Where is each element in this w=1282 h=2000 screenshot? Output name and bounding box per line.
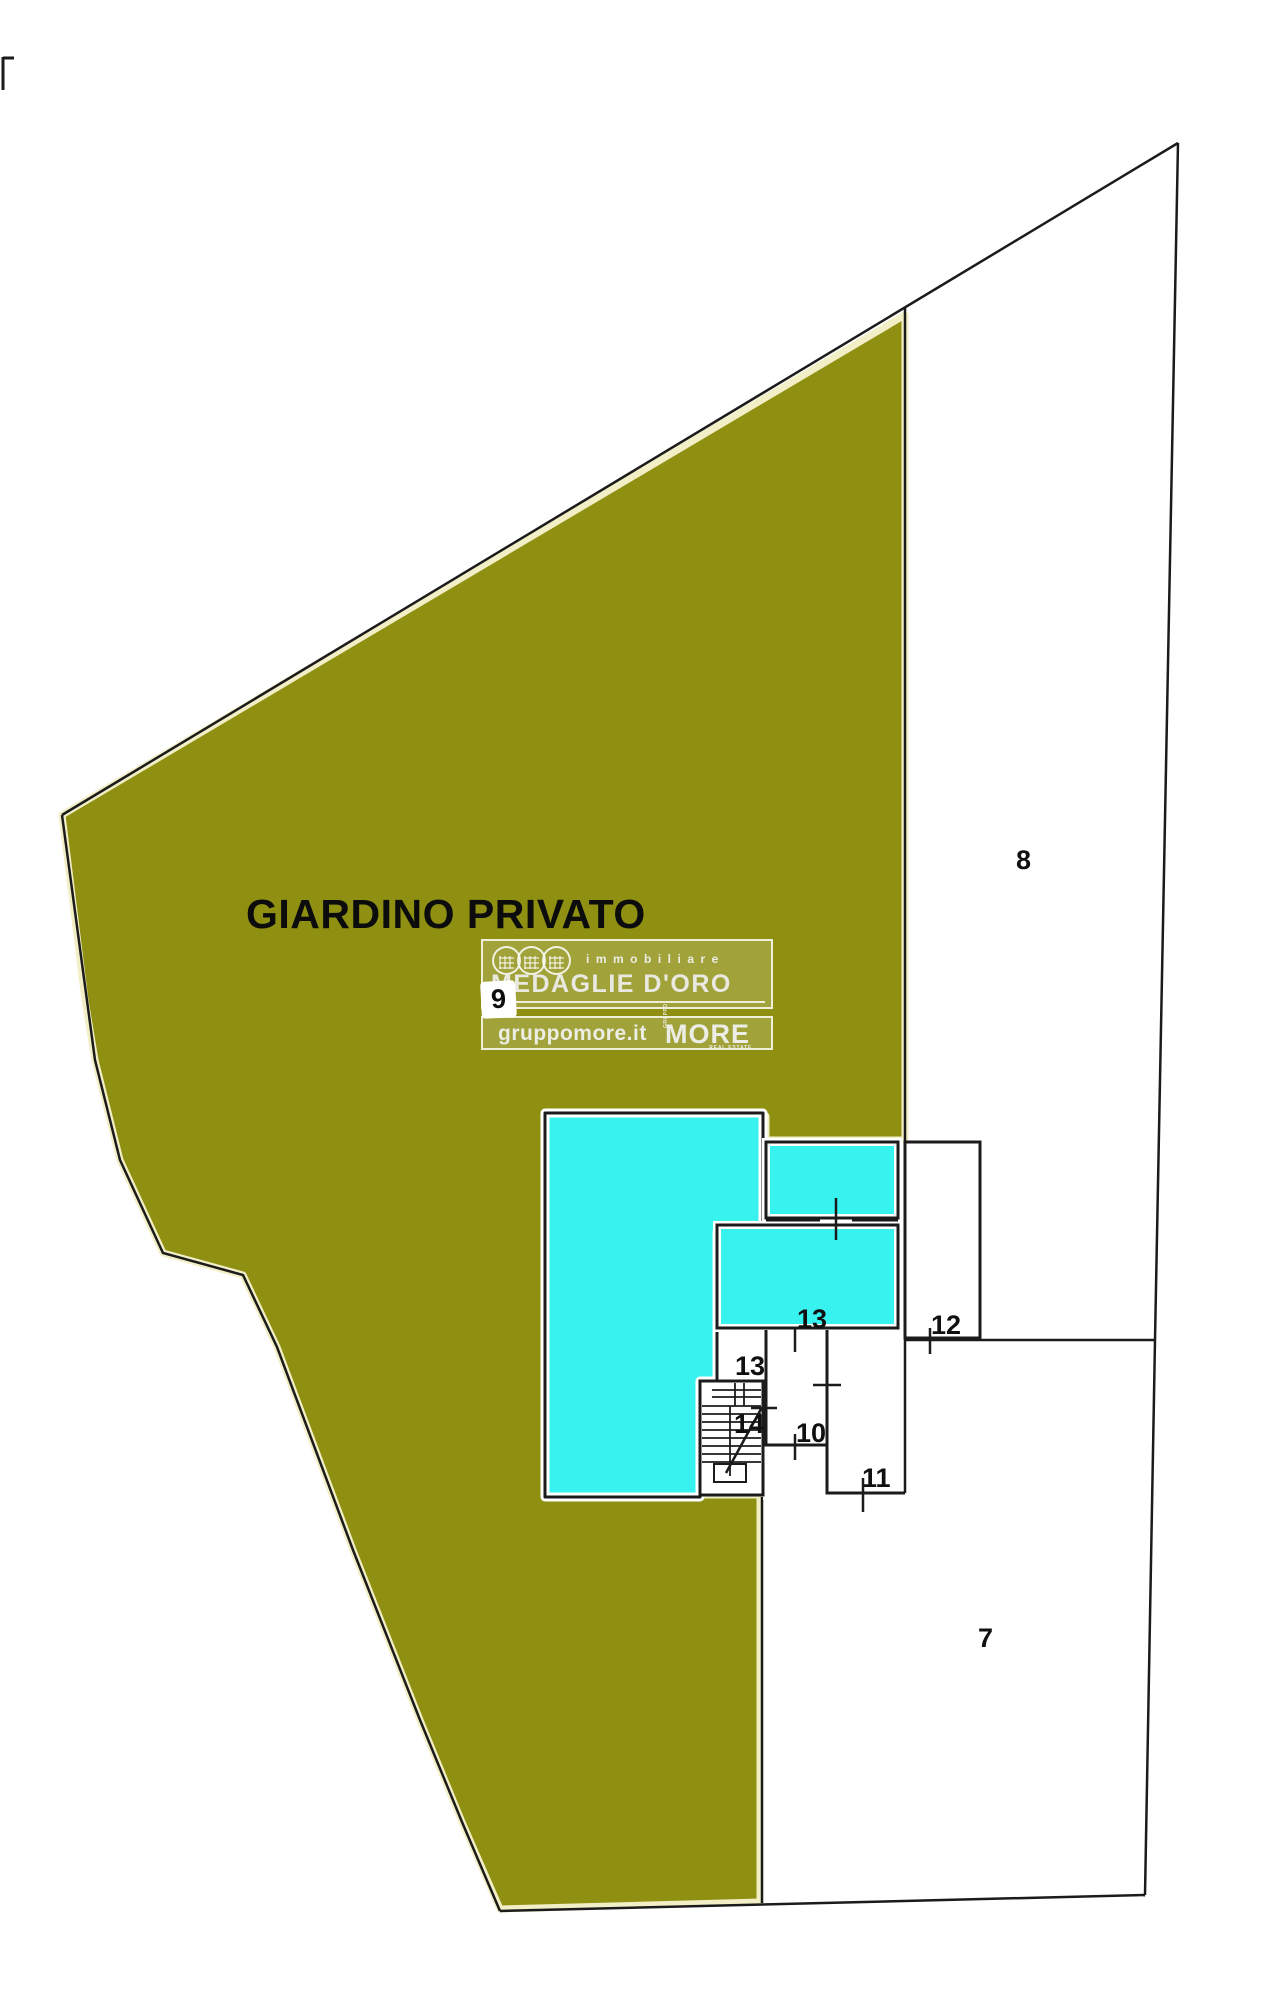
watermark-underline (491, 1001, 765, 1003)
watermark-brand-text: MEDAGLIE D'ORO (491, 970, 732, 999)
room-12-box (905, 1142, 980, 1338)
more-logo: GRUPPO MORE REAL ESTATE (665, 1019, 750, 1049)
watermark-website-text: gruppomore.it (498, 1022, 647, 1046)
label-parcel-10: 10 (796, 1418, 826, 1448)
label-parcel-13-lower: 13 (735, 1351, 765, 1381)
parcel-boundary-right (1145, 143, 1178, 1895)
label-parcel-9: 9 (480, 980, 517, 1019)
watermark-logo-box: immobiliare MEDAGLIE D'ORO (481, 939, 773, 1009)
label-parcel-13-upper: 13 (797, 1304, 827, 1334)
label-parcel-12: 12 (931, 1310, 961, 1340)
garden-area (62, 315, 905, 1909)
watermark-site-box: gruppomore.it GRUPPO MORE REAL ESTATE (481, 1016, 773, 1050)
room-upper-right-cyan (766, 1142, 898, 1218)
floor-plan-page: 8 13 12 13 14 10 11 7 GIARDINO PRIVATO i… (0, 0, 1282, 2000)
more-logo-gruppo-text: GRUPPO (663, 1003, 669, 1028)
label-parcel-8: 8 (1016, 845, 1031, 875)
watermark-immobiliare-text: immobiliare (586, 952, 725, 966)
more-logo-realestate-text: REAL ESTATE (709, 1045, 752, 1051)
scan-artifact-mark (3, 57, 14, 90)
label-parcel-11: 11 (862, 1463, 891, 1493)
label-parcel-14: 14 (734, 1409, 764, 1439)
garden-title: GIARDINO PRIVATO (246, 891, 646, 938)
label-parcel-7: 7 (978, 1623, 993, 1653)
